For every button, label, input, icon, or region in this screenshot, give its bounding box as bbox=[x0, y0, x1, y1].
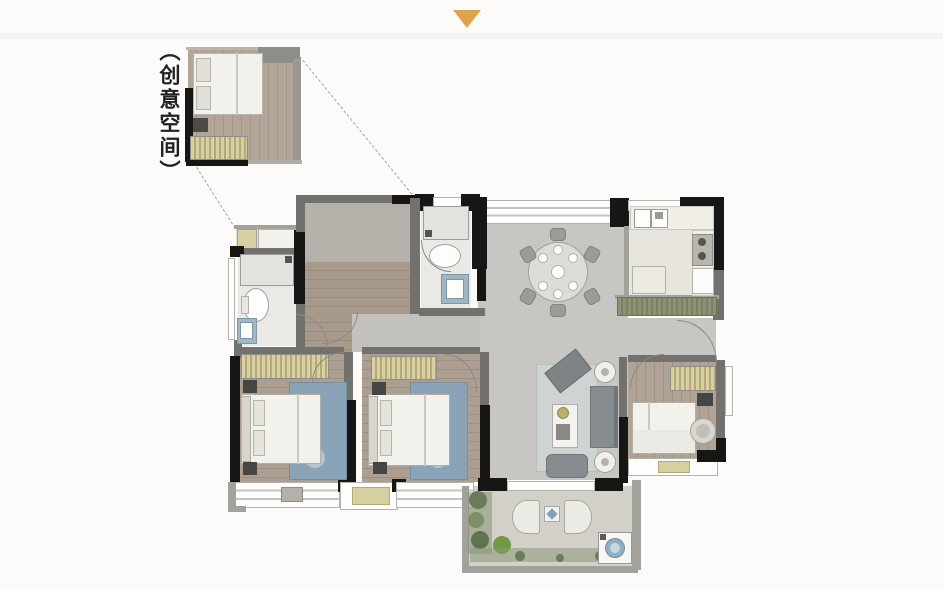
coffee-table-tray bbox=[556, 424, 570, 440]
nightstand bbox=[243, 462, 257, 475]
inset-bed-pillow bbox=[196, 58, 211, 82]
wall-bath-center-south bbox=[419, 308, 485, 316]
inset-wall-bottom-light bbox=[248, 160, 302, 164]
wall-bedroom2-east-black bbox=[480, 405, 490, 485]
wall-right-kitchen bbox=[713, 197, 724, 270]
kitchen-sink-divider bbox=[650, 209, 652, 228]
sofa-back bbox=[614, 386, 618, 448]
lounge-chair-right bbox=[564, 500, 592, 534]
inset-nightstand bbox=[193, 118, 208, 132]
kitchen-fridge bbox=[692, 268, 714, 294]
bed1-pillow bbox=[253, 430, 265, 456]
wardrobe-bedroom2 bbox=[371, 356, 437, 380]
dining-chair bbox=[550, 304, 566, 317]
bay-bedroomR-inner bbox=[658, 461, 690, 473]
lounge-chair-left bbox=[512, 500, 540, 534]
wall-pier bbox=[697, 450, 723, 462]
wall-bedroomR-east bbox=[716, 360, 725, 440]
duct-shaft bbox=[472, 197, 487, 269]
wall-bedroom1-top bbox=[240, 347, 344, 354]
wall-left-bedroom1 bbox=[230, 356, 240, 482]
wall-pier-balcony-right bbox=[595, 478, 623, 491]
nightstand bbox=[697, 393, 713, 406]
wall-pier bbox=[477, 265, 486, 301]
wall-balcony-right bbox=[632, 480, 641, 570]
nightstand bbox=[243, 380, 257, 393]
wall-living-east-black bbox=[619, 417, 628, 483]
shower-head bbox=[425, 230, 432, 237]
shower-head bbox=[285, 256, 292, 263]
nightstand bbox=[372, 382, 386, 395]
wall-bedroom2-east bbox=[480, 352, 489, 407]
window-balcony-door bbox=[507, 481, 595, 491]
bed2-pillow bbox=[380, 430, 392, 456]
bed2-fold bbox=[424, 394, 426, 466]
nightstand bbox=[373, 462, 387, 474]
sink-center-basin bbox=[446, 279, 464, 299]
callout-leader-line bbox=[299, 56, 419, 203]
wall-nook-top bbox=[234, 225, 298, 229]
wall-living-east bbox=[619, 357, 627, 419]
window-bath-left bbox=[228, 258, 235, 340]
background-band bbox=[0, 33, 943, 39]
wall-creative-west-upper bbox=[296, 195, 305, 232]
wall-left-bottom-foot bbox=[228, 506, 246, 512]
bed2-pillow bbox=[380, 400, 392, 426]
bed1-headboard bbox=[241, 396, 251, 462]
wall-creative-east bbox=[410, 198, 420, 314]
kitchen-island bbox=[617, 297, 717, 316]
bedR-blanket bbox=[633, 430, 695, 453]
toilet-left-tank bbox=[241, 296, 249, 314]
wall-bedroom2-top bbox=[362, 347, 480, 354]
dining-chair bbox=[550, 228, 566, 241]
bed2-headboard bbox=[368, 396, 378, 464]
wardrobe-bedroomR bbox=[670, 366, 716, 391]
bed1-fold bbox=[297, 394, 299, 464]
window-dining-top bbox=[480, 200, 611, 224]
floor-creative-room-top bbox=[304, 202, 410, 262]
bed1-pillow bbox=[253, 400, 265, 426]
section-pointer-triangle bbox=[453, 10, 481, 28]
wall-creative-west bbox=[294, 230, 305, 304]
armchair bbox=[546, 454, 588, 478]
kitchen-faucet bbox=[655, 212, 663, 219]
inset-bed-fold bbox=[236, 53, 238, 115]
floor-plan-canvas: （创意空间） bbox=[0, 0, 943, 590]
inset-tatami bbox=[190, 136, 248, 160]
bay-window-bedroomR-east bbox=[725, 366, 733, 416]
bay-center-inner bbox=[352, 487, 390, 505]
inset-wall-right bbox=[293, 58, 301, 160]
dresser-bedroom1 bbox=[281, 487, 303, 502]
washer-panel bbox=[600, 534, 606, 540]
inset-bed-pillow bbox=[196, 86, 211, 110]
floor-creative-room-wood bbox=[304, 262, 410, 314]
creative-space-caption: （创意空间） bbox=[147, 40, 179, 200]
wall-pier-balcony-left bbox=[478, 478, 507, 491]
wall-balcony-bottom bbox=[462, 566, 638, 573]
sink-left-basin bbox=[240, 322, 253, 339]
wall-pier bbox=[610, 198, 629, 227]
wall-kitchen-west bbox=[624, 226, 629, 298]
kitchen-cabinet bbox=[632, 266, 666, 294]
